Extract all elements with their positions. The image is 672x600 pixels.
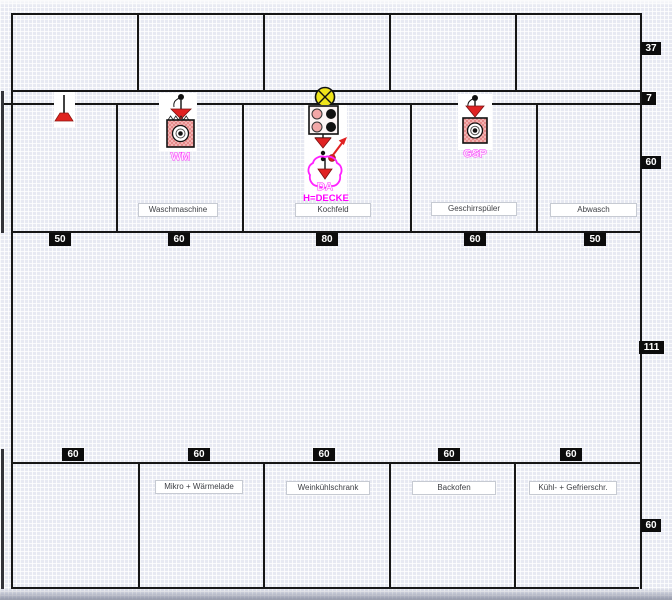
top-divider-2 [263,13,265,91]
dishwasher-icon[interactable]: GSP [455,89,495,161]
dim-right-7[interactable]: 7 [642,92,656,105]
dim-mid-60b[interactable]: 60 [464,233,486,246]
label-abwasch[interactable]: Abwasch [550,203,637,217]
left-edge-wall-mid [1,91,4,233]
dim-bottom-60e[interactable]: 60 [560,448,582,461]
dim-mid-50b[interactable]: 50 [584,233,606,246]
dim-bottom-60d[interactable]: 60 [438,448,460,461]
label-waschmaschine[interactable]: Waschmaschine [138,203,218,217]
label-weinkuehlschrank[interactable]: Weinkühlschrank [286,481,370,495]
hood-code: DA [317,181,333,193]
washing-machine-code: WM [171,151,191,163]
dim-right-60a[interactable]: 60 [641,156,661,169]
dishwasher-code: GSP [463,148,486,160]
mid-divider-4 [536,104,538,232]
canvas-bottom-edge [0,588,672,600]
bottom-band-bottom-line [12,587,639,589]
bottom-divider-1 [138,462,140,588]
mid-divider-2 [242,104,244,232]
dim-bottom-60a[interactable]: 60 [62,448,84,461]
dim-bottom-60b[interactable]: 60 [188,448,210,461]
top-divider-1 [137,13,139,91]
mid-divider-3 [410,104,412,232]
cooktop-hood-icon[interactable]: DA H=DECKE [299,101,357,203]
bottom-divider-2 [263,462,265,588]
connection-dot [178,94,184,100]
left-wall-line [11,13,13,589]
hood-height-note: H=DECKE [303,193,349,203]
top-cabinet-top-line [11,13,641,15]
label-kuehl-gefrierschrank[interactable]: Kühl- + Gefrierschr. [529,481,617,495]
label-backofen[interactable]: Backofen [412,481,496,495]
dim-mid-50a[interactable]: 50 [49,233,71,246]
label-geschirrspueler[interactable]: Geschirrspüler [431,202,517,216]
connection-dot [472,95,478,101]
canvas-top-edge [0,0,672,6]
top-divider-4 [515,13,517,91]
dim-mid-80[interactable]: 80 [316,233,338,246]
label-kochfeld[interactable]: Kochfeld [295,203,371,217]
top-divider-3 [389,13,391,91]
bottom-band-top-line [11,462,640,464]
dim-bottom-60c[interactable]: 60 [313,448,335,461]
dim-right-37[interactable]: 37 [641,42,661,55]
label-mikro-waermelade[interactable]: Mikro + Wärmelade [155,480,243,494]
bottom-divider-3 [389,462,391,588]
cad-drawing-canvas[interactable]: WM DA H=DECKE [0,0,672,600]
bottom-divider-4 [514,462,516,588]
dim-mid-60a[interactable]: 60 [168,233,190,246]
washing-machine-icon[interactable]: WM [158,89,198,163]
dim-right-60b[interactable]: 60 [641,519,661,532]
mid-divider-1 [116,104,118,232]
left-edge-wall-bottom [1,449,4,589]
water-outlet-icon[interactable] [50,89,78,129]
dim-right-111[interactable]: 111 [639,341,664,354]
